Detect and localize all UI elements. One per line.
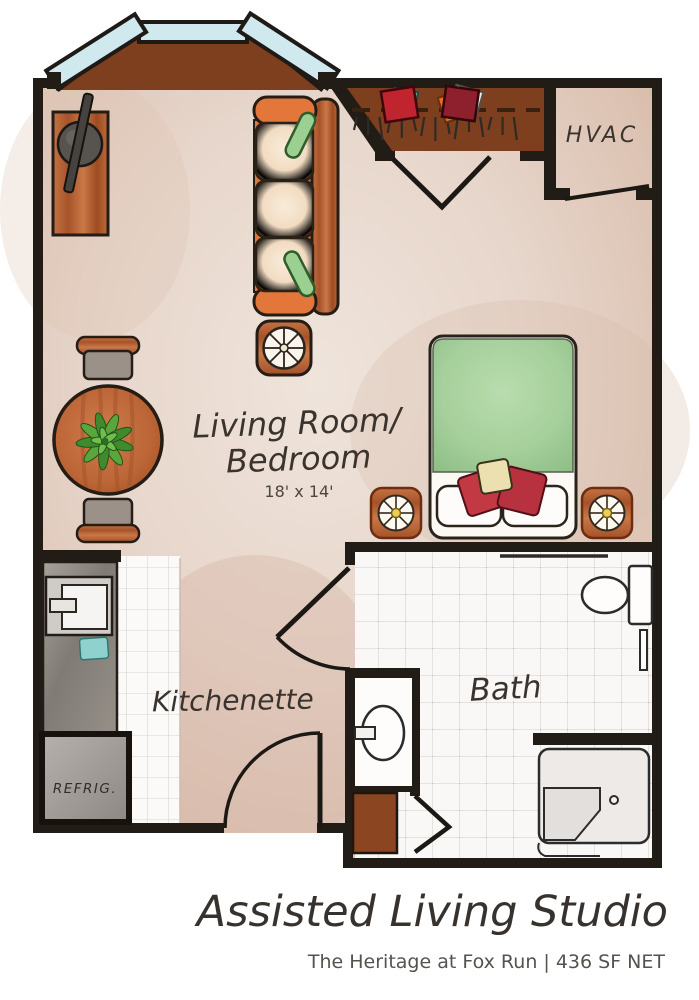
shower-drain — [610, 796, 618, 804]
cutting-board — [79, 637, 108, 660]
vanity — [355, 678, 412, 786]
chair-seat-top — [84, 351, 132, 379]
chair-back-bottom — [77, 525, 139, 542]
window-center — [139, 22, 247, 42]
faucet-icon — [50, 599, 76, 612]
toilet-bowl — [582, 577, 628, 613]
kitchenette-area: REFRIG. — [42, 562, 129, 822]
tv-console — [53, 93, 108, 235]
linen-cabinet — [353, 793, 397, 853]
bed — [430, 336, 576, 538]
kitchen-sink — [46, 577, 112, 635]
living-room-label-line1: Living Room/ — [192, 400, 405, 445]
bed-blanket — [433, 339, 573, 472]
throw-pillow-cream — [477, 458, 513, 494]
exterior-mask — [40, 833, 343, 863]
plan-subtitle: The Heritage at Fox Run | 436 SF NET — [307, 951, 665, 973]
nightstand-right — [582, 488, 632, 538]
nightstand-left — [371, 488, 421, 538]
faucet-icon — [355, 727, 375, 739]
living-room-dimensions: 18' x 14' — [264, 482, 333, 501]
shower — [538, 749, 649, 856]
side-table — [257, 321, 311, 375]
refrigerator-label: REFRIG. — [53, 781, 117, 797]
floor-plan-page: REFRIG. Living Roo — [0, 0, 699, 1000]
toilet-tank — [629, 566, 652, 624]
sofa — [254, 97, 338, 315]
grab-bar — [640, 630, 647, 670]
sofa-back — [312, 99, 338, 314]
chair-seat-bottom — [84, 499, 132, 527]
refrigerator: REFRIG. — [42, 734, 129, 822]
bath-label: Bath — [469, 669, 543, 709]
footer: Assisted Living Studio The Heritage at F… — [194, 887, 668, 973]
hvac-label: HVAC — [566, 123, 639, 148]
plan-title: Assisted Living Studio — [194, 887, 668, 937]
kitchenette-label: Kitchenette — [152, 683, 314, 719]
living-room-label-line2: Bedroom — [225, 437, 372, 480]
floor-plan-svg: REFRIG. Living Roo — [0, 0, 699, 1000]
bay-window — [46, 13, 338, 90]
